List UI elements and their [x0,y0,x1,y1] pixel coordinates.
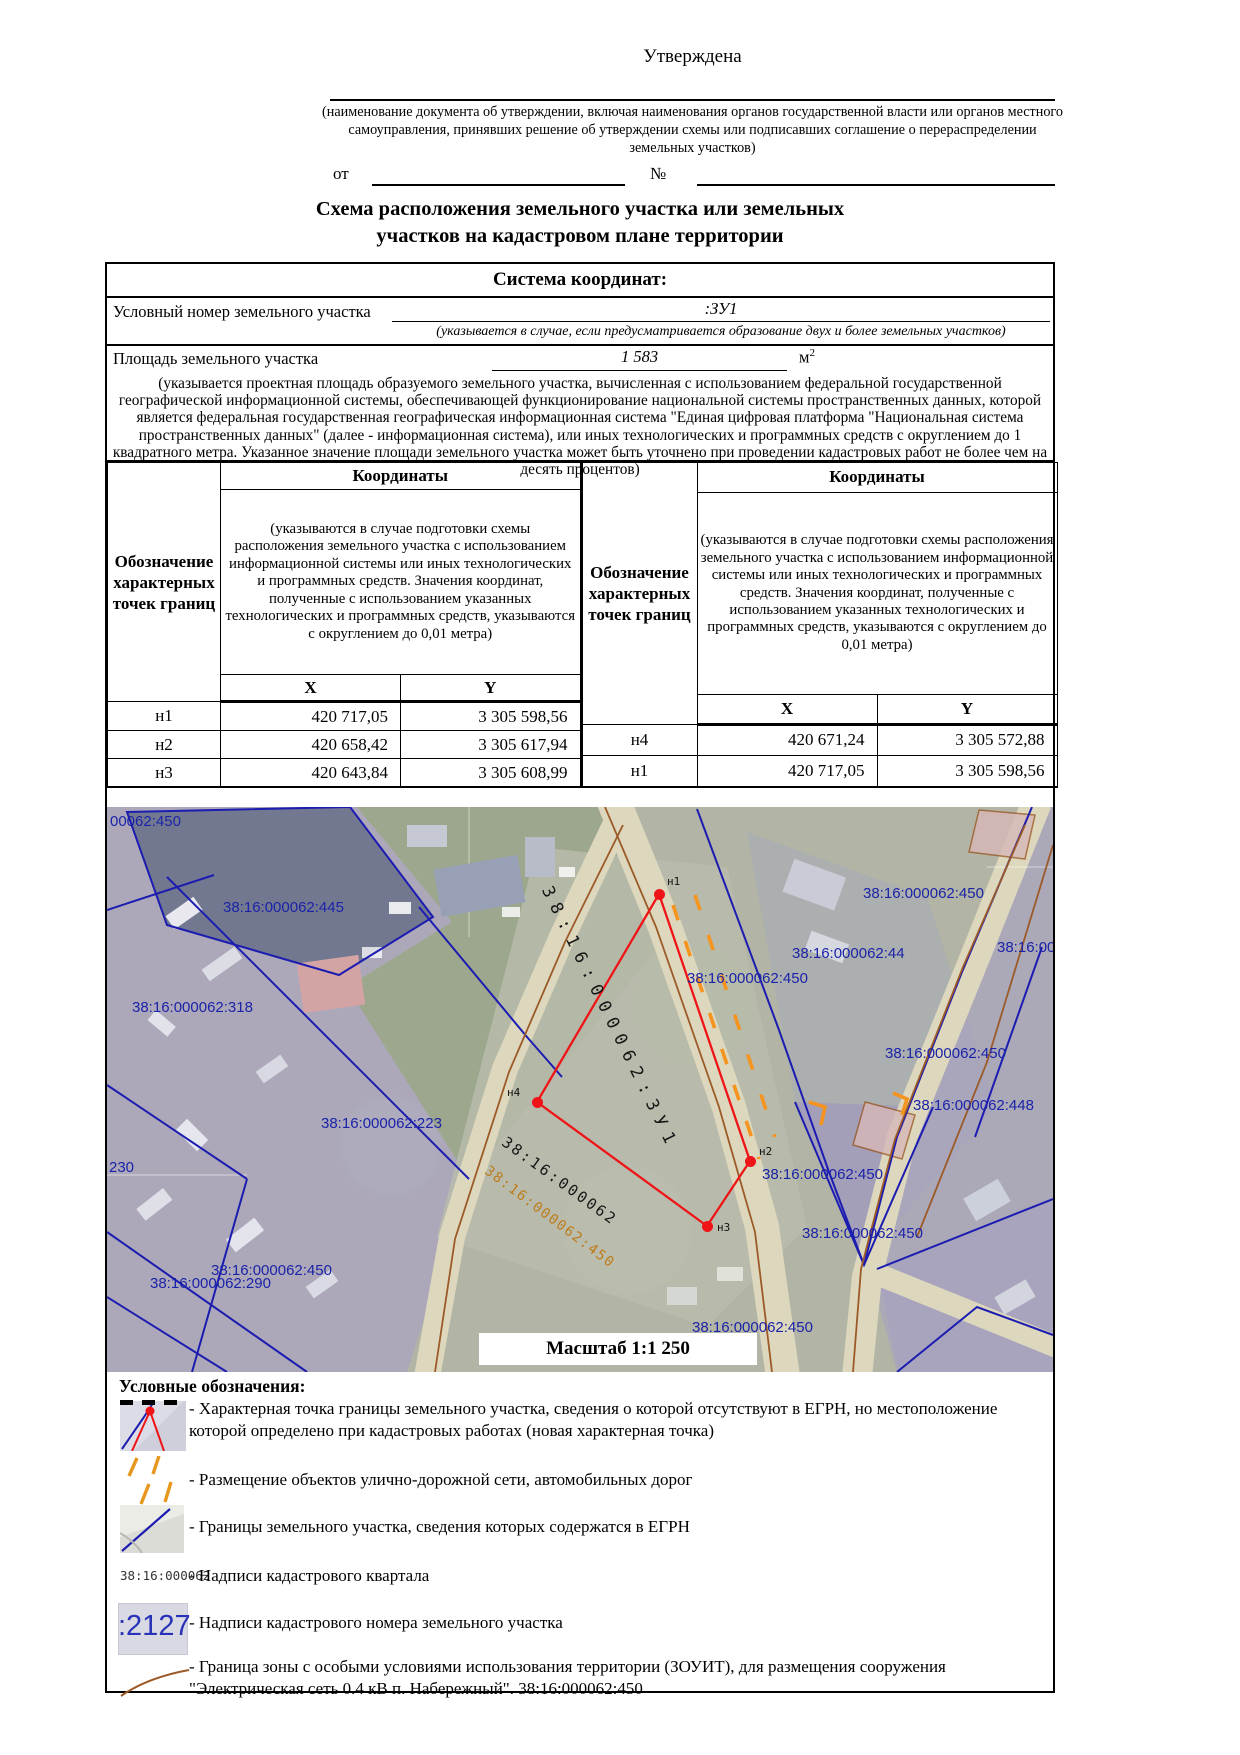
map-scale-label: Масштаб 1:1 250 [479,1333,757,1365]
map-label: 38:16:000062:450 [802,1225,923,1242]
from-label: от [333,164,349,184]
cadastral-map: 00062:45038:16:000062:44538:16:000062:45… [107,807,1053,1372]
number-blank [697,164,1055,186]
legend-item-text: - Надписи кадастрового квартала [189,1565,1045,1587]
point-col-header: Обозначение характерных точек границ [582,463,697,725]
legend-item-text: - Размещение объектов улично-дорожной се… [189,1469,1045,1491]
map-label: 230 [109,1159,134,1176]
table-row: н2 420 658,42 3 305 617,94 [108,731,581,759]
map-label: 38:16:000062:223 [321,1115,442,1132]
area-unit: м2 [799,347,815,368]
new-point-icon [120,1401,186,1451]
cadastral-number-row: Условный номер земельного участка :ЗУ1 (… [107,298,1053,346]
plot-point [745,1156,756,1167]
map-label: 38:16:000062 [997,939,1053,956]
col-x-header: X [697,695,877,725]
area-note: (указывается проектная площадь образуемо… [112,375,1048,478]
area-value: 1 583 [492,347,787,371]
map-label: 38:16:000062:450 [687,970,808,987]
approved-label: Утверждена [330,46,1055,68]
map-label: 38:16:000062:318 [132,999,253,1016]
legend-item-text: - Граница зоны с особыми условиями испол… [189,1656,1045,1699]
table-row: н1 420 717,05 3 305 598,56 [108,702,581,731]
map-label: 38:16:000062:44 [792,945,905,962]
approval-note: (наименование документа об утверждении, … [320,103,1065,157]
point-col-header: Обозначение характерных точек границ [108,463,221,702]
legend-item-text: - Надписи кадастрового номера земельного… [189,1612,1045,1634]
coord-system-header: Система координат: [107,264,1053,298]
legend-item-text: - Характерная точка границы земельного у… [189,1398,1045,1441]
map-label: 38:16:000062:450 [885,1045,1006,1062]
egrn-boundary-icon [120,1505,184,1553]
parcel-number-icon: :2127 [118,1603,188,1655]
map-label: 00062:450 [110,813,181,830]
cadastral-number-value: :ЗУ1 [392,299,1050,322]
number-label: № [650,164,666,184]
table-row: н1 420 717,05 3 305 598,56 [582,756,1057,787]
map-label: 38:16:000062:450 [863,885,984,902]
map-label: 38:16:000062:290 [150,1275,271,1292]
approval-rule [330,99,1055,101]
plot-point-label: н3 [717,1221,730,1234]
area-row: Площадь земельного участка 1 583 м2 (ука… [107,346,1053,462]
zouit-line-icon [119,1660,191,1705]
table-row: н4 420 671,24 3 305 572,88 [582,724,1057,756]
plot-point [654,889,665,900]
legend: Условные обозначения: - Характерная точк… [107,1372,1053,1706]
from-number-line: от № [330,164,1055,188]
map-label: 38:16:000062:450 [762,1166,883,1183]
plot-point-label: н2 [759,1145,772,1158]
date-blank [372,164,625,186]
cadastral-number-label: Условный номер земельного участка [113,302,371,322]
map-label: 38:16:000062:445 [223,899,344,916]
plot-point [532,1097,543,1108]
col-x-header: X [221,675,401,702]
coords-table-right: Обозначение характерных точек границ Коо… [582,462,1058,788]
document-table: Система координат: Условный номер земель… [105,262,1055,1693]
table-row: н3 420 643,84 3 305 608,99 [108,759,581,788]
coords-table-left: Обозначение характерных точек границ Коо… [107,462,582,788]
legend-title: Условные обозначения: [119,1376,305,1397]
cadastral-number-note: (указывается в случае, если предусматрив… [392,324,1050,340]
col-y-header: Y [401,675,581,702]
map-label: 38:16:000062:448 [913,1097,1034,1114]
legend-item-text: - Границы земельного участка, сведения к… [189,1516,1045,1538]
document-page: Утверждена (наименование документа об ут… [0,0,1240,1755]
plot-point [702,1221,713,1232]
col-y-header: Y [877,695,1057,725]
area-label: Площадь земельного участка [113,349,318,369]
plot-point-label: н1 [667,875,680,888]
coords-note: (указываются в случае подготовки схемы р… [697,492,1057,694]
page-title: Схема расположения земельного участка ил… [105,196,1055,250]
coords-note: (указываются в случае подготовки схемы р… [221,490,581,675]
road-dashes-icon [123,1456,187,1511]
coordinates-tables: Обозначение характерных точек границ Коо… [107,462,1053,788]
plot-point-label: н4 [507,1086,520,1099]
